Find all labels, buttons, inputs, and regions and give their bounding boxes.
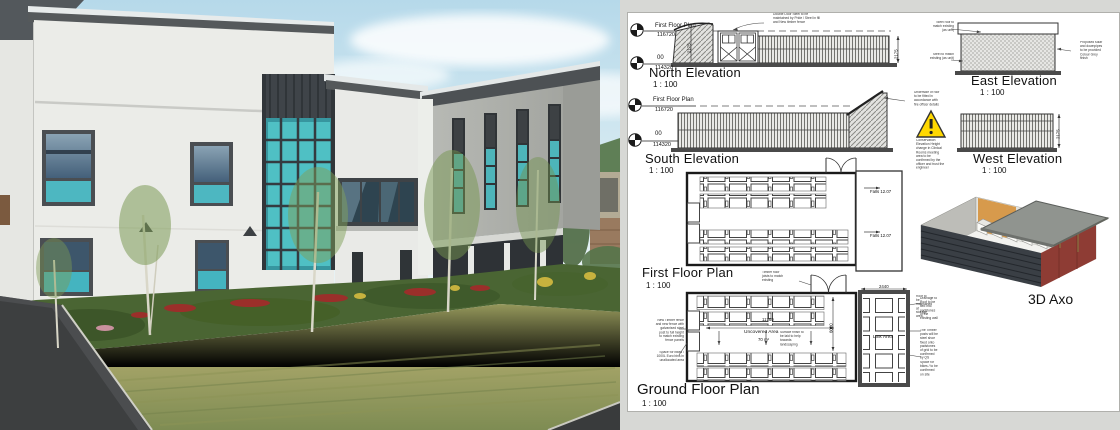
- dim-courtyard-width: 6000: [830, 323, 834, 333]
- east-elevation-scale: 1 : 100: [980, 88, 1004, 97]
- site-photo: [0, 0, 620, 430]
- datum-ground-label: 00: [657, 55, 664, 61]
- south-elevation-title: South Elevation: [645, 151, 739, 166]
- dim-west-height: 2175: [1057, 129, 1061, 139]
- datum-first-floor-level: 116720: [657, 32, 675, 38]
- ground-floor-plan-scale: 1 : 100: [642, 399, 666, 408]
- dim-north-shelter: 2175: [688, 43, 692, 53]
- ground-floor-plan-drawing: [679, 275, 921, 385]
- note-east-side: Proposed solar and downpipes to be provi…: [1080, 41, 1103, 61]
- east-elevation-drawing: [951, 23, 1071, 75]
- north-elevation-scale: 1 : 100: [653, 80, 677, 89]
- note-north-door: Double Door Steel to be maintained by Pr…: [773, 13, 823, 25]
- dim-link-width: 2440: [879, 285, 889, 289]
- axo-title: 3D Axo: [1028, 291, 1073, 307]
- datum-south-00-label: 00: [655, 131, 662, 137]
- site-photo-panel: [0, 0, 620, 430]
- ffp-falls-1: Falls 12.07: [870, 190, 891, 194]
- gfp-link-area-label: Link Area: [873, 335, 893, 340]
- note-axo: Roof to be maintained at storage area: [916, 295, 930, 319]
- note-south-roof: Underside of roof to be fitted in accord…: [914, 91, 943, 107]
- datum-south-00-level: 114320: [653, 142, 671, 148]
- datum-south-ff-level: 116720: [655, 107, 673, 113]
- note-gfp-right-2: The Timber posts will be steel shoe fixe…: [920, 329, 939, 361]
- south-elevation-scale: 1 : 100: [649, 166, 673, 175]
- west-elevation-scale: 1 : 100: [982, 166, 1006, 175]
- note-warning: Conservation Elevation Height change in …: [916, 139, 946, 171]
- window-upper-2: [190, 142, 233, 206]
- note-ffp-door: Timber floor joists to match existing: [762, 271, 785, 283]
- north-elevation-drawing: [631, 23, 900, 69]
- window-ground-2: [195, 240, 229, 292]
- datum-south-ff-label: First Floor Plan: [653, 97, 694, 103]
- window-upper-1: [42, 130, 95, 206]
- ffp-falls-2: Falls 12.07: [870, 234, 891, 238]
- note-gfp-mid: Surface finish to be laid to help toward…: [780, 331, 804, 347]
- note-gfp-left-1: New Timber fence and new fence with galv…: [655, 319, 684, 343]
- dim-courtyard-length: 11760: [762, 318, 774, 322]
- ribbon-window: [336, 178, 420, 231]
- north-elevation-title: North Elevation: [649, 65, 741, 80]
- screenshot-root: First Floor Plan 116720 00 114320 North …: [0, 0, 1120, 430]
- east-elevation-title: East Elevation: [971, 73, 1057, 88]
- note-east-roof: Steel roof to match existing (as unit): [928, 21, 954, 33]
- bench: [0, 195, 10, 225]
- first-floor-plan-title: First Floor Plan: [642, 265, 733, 280]
- first-floor-plan-scale: 1 : 100: [646, 281, 670, 290]
- dim-north-height: 2175: [895, 49, 899, 59]
- ground-floor-plan-title: Ground Floor Plan: [637, 381, 760, 398]
- note-east-base: Steel to match existing (as unit): [928, 53, 954, 61]
- datum-first-floor-label: First Floor Plan: [655, 23, 696, 29]
- drawing-sheet: First Floor Plan 116720 00 114320 North …: [627, 12, 1120, 412]
- note-gfp-right-3: Space for bikes / to be confirmed on sit…: [920, 361, 939, 377]
- note-gfp-left-2: Space for bikes / 1000L Euro bins in una…: [655, 351, 684, 363]
- west-elevation-drawing: [957, 114, 1061, 152]
- west-elevation-title: West Elevation: [973, 151, 1062, 166]
- gfp-uncovered-area-label: Uncovered Area: [744, 330, 778, 335]
- gfp-uncovered-area-size: 70 m²: [758, 338, 769, 342]
- first-floor-plan-drawing: [687, 158, 902, 271]
- axo-drawing: [921, 197, 1108, 287]
- drawing-sheet-panel: First Floor Plan 116720 00 114320 North …: [620, 0, 1120, 430]
